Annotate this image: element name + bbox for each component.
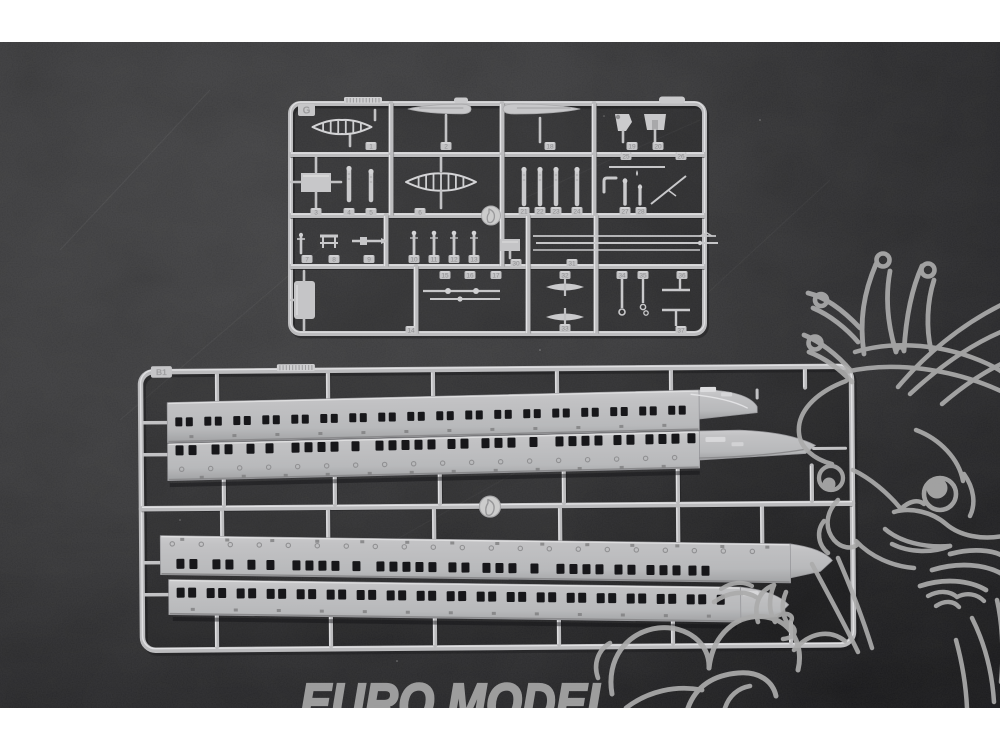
svg-text:32: 32 [561, 272, 569, 279]
svg-text:11: 11 [431, 256, 438, 263]
svg-text:26: 26 [677, 153, 685, 160]
svg-text:2: 2 [444, 143, 448, 150]
svg-text:22: 22 [536, 208, 544, 215]
svg-text:8: 8 [332, 256, 336, 263]
svg-text:35: 35 [639, 272, 647, 279]
svg-text:16: 16 [466, 272, 474, 279]
svg-text:28: 28 [637, 208, 645, 215]
svg-text:B1: B1 [156, 367, 167, 377]
svg-text:14: 14 [407, 327, 415, 334]
svg-text:5: 5 [369, 209, 373, 216]
svg-text:19: 19 [628, 143, 636, 150]
svg-text:21: 21 [520, 208, 528, 215]
svg-text:18: 18 [546, 143, 554, 150]
svg-text:24: 24 [573, 208, 581, 215]
svg-text:20: 20 [654, 143, 662, 150]
svg-text:1: 1 [369, 143, 373, 150]
svg-text:13: 13 [470, 256, 478, 263]
svg-text:25: 25 [622, 153, 630, 160]
svg-text:37: 37 [677, 327, 685, 334]
svg-text:23: 23 [552, 208, 560, 215]
svg-text:12: 12 [450, 256, 458, 263]
svg-text:10: 10 [410, 256, 418, 263]
svg-text:G: G [303, 106, 311, 117]
svg-text:3: 3 [314, 209, 318, 216]
svg-text:36: 36 [678, 272, 686, 279]
svg-text:7: 7 [305, 256, 309, 263]
svg-text:34: 34 [618, 272, 626, 279]
svg-text:30: 30 [512, 260, 520, 267]
svg-text:31: 31 [568, 260, 576, 267]
svg-text:15: 15 [441, 272, 449, 279]
svg-text:33: 33 [561, 325, 569, 332]
svg-text:9: 9 [367, 256, 371, 263]
svg-text:6: 6 [418, 209, 422, 216]
svg-text:17: 17 [492, 272, 500, 279]
svg-text:27: 27 [621, 208, 629, 215]
svg-text:4: 4 [347, 209, 351, 216]
